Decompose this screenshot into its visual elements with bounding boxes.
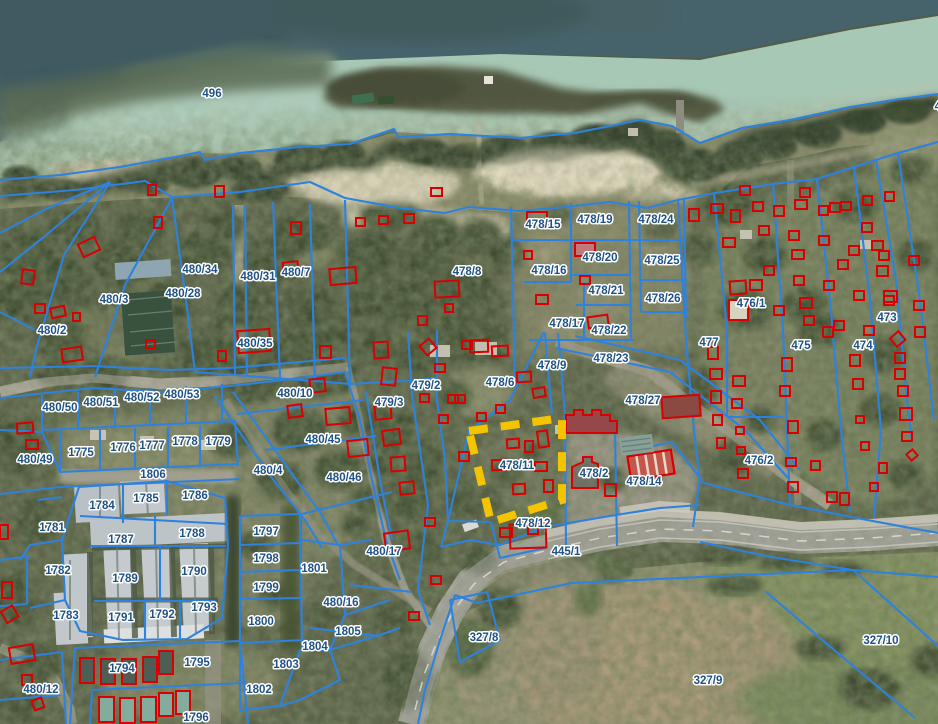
svg-text:1781: 1781 — [39, 522, 65, 534]
svg-text:478/12: 478/12 — [515, 518, 550, 530]
svg-text:480/28: 480/28 — [165, 288, 201, 300]
svg-text:1790: 1790 — [181, 566, 207, 578]
svg-text:476/1: 476/1 — [737, 298, 766, 310]
svg-text:1795: 1795 — [184, 657, 210, 669]
svg-text:473: 473 — [877, 312, 896, 324]
svg-text:478/27: 478/27 — [625, 395, 660, 407]
svg-text:478/16: 478/16 — [531, 265, 566, 277]
svg-text:480/17: 480/17 — [366, 546, 401, 558]
svg-text:1802: 1802 — [246, 684, 272, 696]
svg-text:480/46: 480/46 — [326, 472, 361, 484]
svg-text:478/14: 478/14 — [626, 476, 662, 488]
svg-text:480/10: 480/10 — [277, 388, 312, 400]
svg-text:327/10: 327/10 — [863, 635, 898, 647]
svg-text:1791: 1791 — [108, 612, 134, 624]
svg-text:480/4: 480/4 — [254, 465, 283, 477]
svg-text:1797: 1797 — [253, 526, 279, 538]
svg-text:478/11: 478/11 — [500, 460, 535, 472]
svg-text:478/26: 478/26 — [645, 293, 680, 305]
svg-text:1788: 1788 — [179, 528, 205, 540]
svg-text:480/16: 480/16 — [323, 597, 358, 609]
svg-text:478/2: 478/2 — [580, 468, 609, 480]
svg-text:1775: 1775 — [68, 447, 94, 459]
svg-text:478/6: 478/6 — [486, 377, 515, 389]
svg-text:480/12: 480/12 — [23, 684, 58, 696]
svg-text:1777: 1777 — [139, 440, 165, 452]
svg-text:475: 475 — [791, 340, 811, 352]
svg-text:480/53: 480/53 — [164, 389, 199, 401]
svg-text:1794: 1794 — [109, 663, 135, 675]
svg-text:1800: 1800 — [248, 616, 274, 628]
svg-text:1796: 1796 — [183, 712, 209, 724]
svg-text:445/1: 445/1 — [552, 546, 581, 558]
svg-text:478/15: 478/15 — [525, 219, 561, 231]
svg-text:479/2: 479/2 — [412, 380, 441, 392]
svg-text:47: 47 — [935, 101, 938, 113]
svg-text:478/23: 478/23 — [593, 353, 628, 365]
svg-text:478/8: 478/8 — [453, 266, 482, 278]
svg-text:480/35: 480/35 — [237, 338, 273, 350]
svg-text:480/50: 480/50 — [42, 402, 77, 414]
svg-text:1792: 1792 — [149, 609, 175, 621]
svg-text:480/31: 480/31 — [240, 271, 276, 283]
svg-text:1801: 1801 — [301, 563, 327, 575]
svg-text:479/3: 479/3 — [375, 397, 404, 409]
svg-text:478/22: 478/22 — [591, 325, 626, 337]
svg-text:1782: 1782 — [45, 565, 71, 577]
svg-text:480/45: 480/45 — [305, 434, 341, 446]
svg-text:1785: 1785 — [133, 493, 159, 505]
svg-text:1803: 1803 — [273, 659, 299, 671]
svg-text:480/51: 480/51 — [83, 397, 119, 409]
svg-text:1793: 1793 — [191, 602, 217, 614]
svg-text:1789: 1789 — [112, 573, 138, 585]
svg-text:478/20: 478/20 — [582, 252, 617, 264]
svg-text:478/17: 478/17 — [549, 318, 584, 330]
svg-text:474: 474 — [853, 340, 873, 352]
svg-text:327/8: 327/8 — [470, 632, 499, 644]
svg-text:478/24: 478/24 — [638, 214, 674, 226]
svg-text:480/34: 480/34 — [182, 264, 218, 276]
svg-text:496: 496 — [202, 88, 221, 100]
svg-text:327/9: 327/9 — [694, 675, 723, 687]
svg-text:1799: 1799 — [253, 582, 279, 594]
svg-text:480/3: 480/3 — [100, 294, 129, 306]
svg-text:480/52: 480/52 — [124, 392, 159, 404]
svg-text:478/9: 478/9 — [538, 360, 567, 372]
svg-text:478/25: 478/25 — [644, 255, 680, 267]
svg-text:1786: 1786 — [182, 490, 208, 502]
svg-text:1806: 1806 — [140, 469, 166, 481]
svg-text:1776: 1776 — [110, 442, 136, 454]
svg-text:476/2: 476/2 — [745, 455, 774, 467]
svg-text:1798: 1798 — [253, 553, 279, 565]
svg-text:1779: 1779 — [205, 436, 231, 448]
svg-text:1778: 1778 — [172, 436, 198, 448]
svg-text:478/19: 478/19 — [577, 214, 612, 226]
svg-text:477: 477 — [699, 337, 718, 349]
svg-text:480/2: 480/2 — [38, 325, 67, 337]
svg-text:1787: 1787 — [108, 534, 134, 546]
svg-text:478/21: 478/21 — [588, 285, 624, 297]
svg-text:1784: 1784 — [89, 500, 115, 512]
svg-text:1805: 1805 — [335, 626, 361, 638]
svg-text:1804: 1804 — [302, 641, 328, 653]
svg-text:1783: 1783 — [53, 610, 79, 622]
svg-text:480/49: 480/49 — [17, 454, 52, 466]
svg-text:480/7: 480/7 — [282, 267, 311, 279]
